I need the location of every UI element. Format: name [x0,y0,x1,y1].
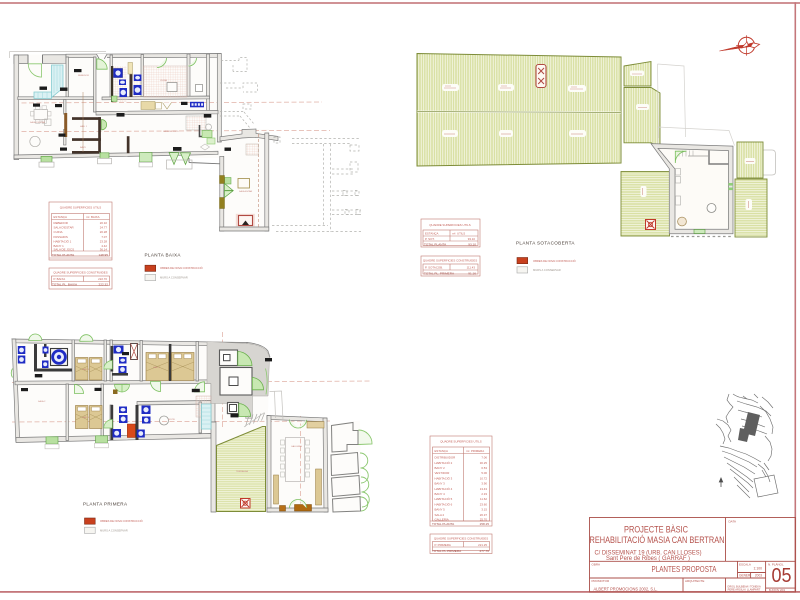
svg-text:TOTAL PLANTA: TOTAL PLANTA [432,522,455,526]
svg-text:GENER: GENER [739,574,751,578]
svg-text:10.72: 10.72 [480,476,488,480]
svg-text:SALA ESTAR: SALA ESTAR [239,190,253,193]
svg-text:91.16: 91.16 [468,272,476,276]
svg-text:93.10: 93.10 [468,243,476,247]
svg-text:221.25: 221.25 [478,543,487,547]
svg-text:5.06: 5.06 [481,471,487,475]
svg-text:BANY 5: BANY 5 [435,508,446,512]
svg-text:DISTRIBUIDOR: DISTRIBUIDOR [435,456,456,460]
svg-text:3.90: 3.90 [481,482,487,486]
svg-text:93.10: 93.10 [468,237,476,241]
svg-text:BANY 4: BANY 4 [435,492,446,496]
svg-text:MURS A CONSERVAR: MURS A CONSERVAR [160,276,188,280]
svg-text:ESCALA: ESCALA [739,562,751,566]
svg-text:HABITACIÓ 6: HABITACIÓ 6 [435,501,453,506]
svg-text:MURS A CONSERVAR: MURS A CONSERVAR [100,529,128,533]
svg-text:BANY: BANY [80,146,86,149]
svg-text:B-XXXIV 2/19: B-XXXIV 2/19 [769,588,786,592]
svg-text:PLANTES PROPOSTA: PLANTES PROPOSTA [652,564,717,574]
svg-text:PLANTA PRIMERA: PLANTA PRIMERA [83,502,128,507]
svg-text:HABITACIÓ 3: HABITACIÓ 3 [435,475,453,480]
svg-text:TOTAL PLANTA: TOTAL PLANTA [52,253,75,257]
svg-text:SALA DE JOCS: SALA DE JOCS [163,130,179,133]
svg-text:PLANTA SOTACOBERTA: PLANTA SOTACOBERTA [516,240,575,245]
svg-text:222.70: 222.70 [98,277,107,281]
svg-text:HAB. 2: HAB. 2 [153,366,161,369]
svg-text:11.62: 11.62 [480,497,487,501]
svg-text:277.76: 277.76 [480,549,490,553]
svg-text:ESTANÇA: ESTANÇA [54,215,68,219]
svg-text:QUADRE SUPERFICIES UTILS: QUADRE SUPERFICIES UTILS [440,440,482,444]
svg-text:23.60: 23.60 [480,502,488,506]
svg-text:222.32: 222.32 [99,283,109,287]
svg-text:13.43: 13.43 [480,487,488,491]
svg-text:TOTAL PLANTA: TOTAL PLANTA [424,243,447,247]
svg-text:TOTAL PL. PRIMERA: TOTAL PL. PRIMERA [424,272,455,276]
svg-text:ALBERT PROMOCIONS 2002, S.L.: ALBERT PROMOCIONS 2002, S.L. [594,586,658,591]
svg-text:SALA 2: SALA 2 [38,400,46,403]
svg-text:2003: 2003 [755,574,762,578]
svg-text:QUADRE SUPERFICIES CONSTRUIDES: QUADRE SUPERFICIES CONSTRUIDES [423,259,477,263]
svg-text:24.77: 24.77 [100,226,108,230]
svg-text:HAB. 1: HAB. 1 [80,125,88,128]
svg-text:6.53: 6.53 [481,466,487,470]
svg-text:148.95: 148.95 [99,253,109,257]
svg-text:ESTANÇA: ESTANÇA [435,449,449,453]
svg-text:P. PRIMERA: P. PRIMERA [435,543,451,547]
svg-text:25.70: 25.70 [480,517,488,521]
svg-text:20.28: 20.28 [100,230,108,234]
svg-text:P. BAIXA: P. BAIXA [54,277,66,281]
svg-text:158.15: 158.15 [480,522,490,526]
svg-text:VESTIDOR: VESTIDOR [435,471,450,475]
svg-text:REBEDOR: REBEDOR [54,221,68,225]
svg-text:HABITACIÓ 4: HABITACIÓ 4 [435,486,453,491]
svg-text:SALA D'ESTAR: SALA D'ESTAR [30,121,46,124]
svg-text:SALA D'ESTAR: SALA D'ESTAR [54,226,74,230]
svg-text:PERE ARGILA I LLAMPART: PERE ARGILA I LLAMPART [728,588,761,592]
svg-text:Sant Pere de Ribes ( GARRAF ): Sant Pere de Ribes ( GARRAF ) [606,556,690,562]
svg-text:GALLERIA: GALLERIA [435,517,449,521]
svg-text:ARQUITECTE: ARQUITECTE [685,579,704,583]
svg-text:7.06: 7.06 [481,456,487,460]
svg-text:m². PRIMERA: m². PRIMERA [466,449,484,453]
svg-text:05: 05 [772,565,792,587]
svg-text:m². UTILS: m². UTILS [452,232,465,236]
svg-text:QUADRE SUPERFICIES UTILS: QUADRE SUPERFICIES UTILS [429,223,471,227]
svg-text:OBRA: OBRA [592,562,601,566]
svg-text:REBEDOR: REBEDOR [78,75,89,77]
svg-text:DATA: DATA [729,520,737,524]
svg-text:PASSADIS: PASSADIS [54,235,68,239]
svg-text:PLANTA BAIXA: PLANTA BAIXA [145,252,182,257]
svg-text:HAB. 3: HAB. 3 [82,368,90,371]
svg-text:1:100: 1:100 [754,567,763,571]
svg-text:7.07: 7.07 [101,235,107,239]
svg-text:BANY 3: BANY 3 [435,482,446,486]
svg-text:MURS A CONSERVAR: MURS A CONSERVAR [533,268,561,272]
svg-text:P. SOT.: P. SOT. [425,237,435,241]
svg-text:20.32: 20.32 [100,221,108,225]
svg-text:SALA 2: SALA 2 [435,513,445,517]
svg-text:CUINA: CUINA [54,230,63,234]
svg-text:GALLERIA: GALLERIA [291,445,302,448]
svg-text:QUADRE SUPERFICIES CONSTRUIDES: QUADRE SUPERFICIES CONSTRUIDES [434,537,488,541]
svg-text:QUADRE SUPERFICIES CONSTRUIDES: QUADRE SUPERFICIES CONSTRUIDES [53,271,107,275]
svg-text:TERRASSA: TERRASSA [236,470,248,473]
svg-text:m². BAIXA: m². BAIXA [86,215,100,219]
svg-text:HAB. 4: HAB. 4 [82,416,90,419]
svg-text:3.15: 3.15 [481,508,487,512]
svg-text:23.28: 23.28 [100,239,108,243]
svg-text:CUINA: CUINA [160,79,167,82]
svg-text:2.33: 2.33 [481,492,487,496]
svg-text:REHABILITACIÓ MASIA CAN BERTRA: REHABILITACIÓ MASIA CAN BERTRAN [590,534,725,545]
svg-text:ESTANÇA: ESTANÇA [425,232,439,236]
svg-text:TOTAL PL.PRIMERA: TOTAL PL.PRIMERA [432,549,462,553]
svg-text:36.14: 36.14 [100,248,108,252]
svg-text:PROMOTOR: PROMOTOR [592,579,610,583]
svg-text:30.25: 30.25 [480,461,488,465]
svg-text:HABITACIÓ 5: HABITACIÓ 5 [435,496,453,501]
svg-text:DISTR.: DISTR. [168,419,176,421]
svg-text:HABITACIÓ 2: HABITACIÓ 2 [435,460,453,465]
svg-text:QUADRE SUPERFICIES UTILS: QUADRE SUPERFICIES UTILS [60,206,102,210]
svg-text:BANY 2: BANY 2 [435,466,446,470]
svg-text:111.43: 111.43 [467,266,476,270]
svg-text:HABITACIÓ 1: HABITACIÓ 1 [54,238,72,243]
svg-text:TOTAL PL. BAIXA: TOTAL PL. BAIXA [52,283,78,287]
svg-text:SALA DE JOCS: SALA DE JOCS [54,248,75,252]
svg-text:26.37: 26.37 [480,513,488,517]
svg-text:P. SOTACOB.: P. SOTACOB. [425,266,443,270]
